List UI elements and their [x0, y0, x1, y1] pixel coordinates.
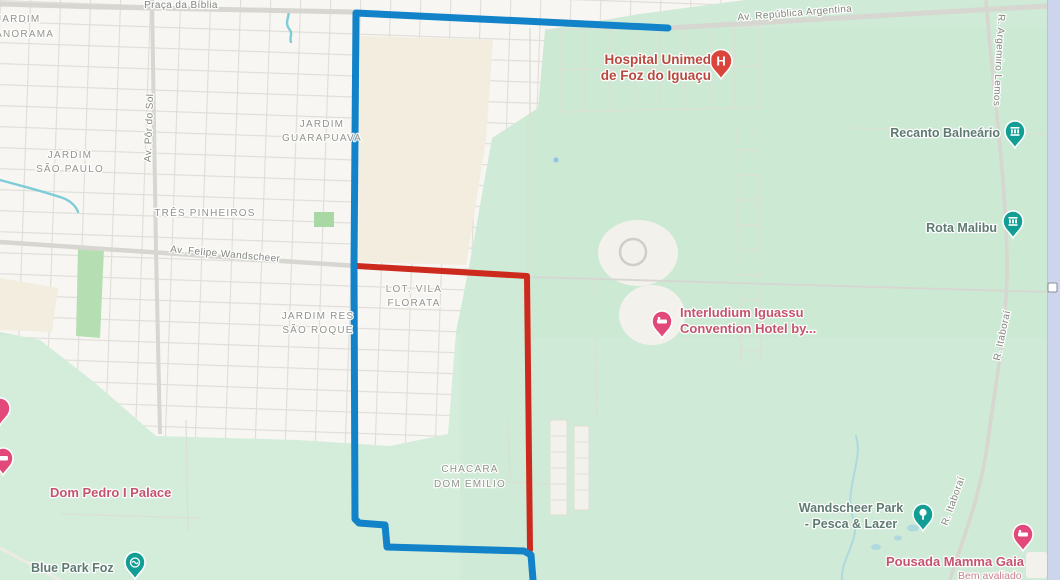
- building-icon: [1011, 127, 1020, 136]
- building-icon: [1009, 217, 1018, 226]
- poi-label-pousada-mamma-gaia[interactable]: Pousada Mamma Gaia: [886, 554, 1025, 569]
- area-label-jardim-sao-paulo: JARDIM: [48, 150, 92, 161]
- area-label-tres-pinheiros: TRÊS PINHEIROS: [154, 206, 255, 219]
- map-canvas[interactable]: H Praça da Bíblia Av. República A: [0, 0, 1060, 580]
- housing-row: [574, 426, 589, 510]
- map-svg: H Praça da Bíblia Av. República A: [0, 0, 1060, 580]
- area-label-jardim-guarapuava-l2: GUARAPUAVA: [282, 133, 362, 144]
- scrollbar-handle[interactable]: [1048, 283, 1057, 292]
- area-label-lot-vila-florata-l2: FLORATA: [387, 298, 440, 309]
- poi-label-blue-park-foz[interactable]: Blue Park Foz: [31, 561, 114, 575]
- roundabout: [620, 239, 646, 265]
- area-label-jardim-res-sao-roque-l2: SÃO ROQUE: [282, 323, 353, 336]
- area-label-jardim-res-sao-roque: JARDIM RES: [282, 311, 355, 322]
- area-label-jardim-panorama-l2: PANORAMA: [0, 29, 54, 40]
- poi-label-wandscheer-park[interactable]: Wandscheer Park: [799, 501, 903, 515]
- park-square: [314, 212, 334, 227]
- area-label-lot-vila-florata: LOT. VILA: [386, 284, 442, 295]
- poi-label-rota-malibu[interactable]: Rota Malibu: [926, 221, 997, 235]
- scrollbar-strip: [1047, 0, 1060, 580]
- poi-label-hospital-unimed[interactable]: Hospital Unimed: [604, 52, 711, 67]
- area-label-chacara-dom-emilio: CHACARA: [441, 464, 498, 475]
- bed-icon: [0, 456, 8, 461]
- poi-label-interludium[interactable]: Interludium Iguassu: [680, 305, 804, 320]
- area-label-jardim-sao-paulo-l2: SÃO PAULO: [36, 162, 104, 175]
- park-strip: [76, 248, 104, 338]
- street-label-praca-da-biblia: Praça da Bíblia: [144, 0, 218, 11]
- poi-label-recanto-balneario[interactable]: Recanto Balneário: [890, 126, 1000, 140]
- poi-label-hospital-unimed-l2[interactable]: de Foz do Iguaçu: [601, 68, 711, 83]
- hospital-h-icon: H: [716, 54, 725, 69]
- area-label-jardim-panorama: JARDIM: [0, 14, 40, 25]
- area-label-chacara-dom-emilio-l2: DOM EMILIO: [434, 479, 506, 490]
- poi-label-mamma-gaia-rating: Bem avaliado: [958, 570, 1022, 580]
- area-label-jardim-guarapuava: JARDIM: [300, 119, 344, 130]
- hotel-grounds: [619, 285, 685, 345]
- poi-label-interludium-l2[interactable]: Convention Hotel by...: [680, 321, 816, 336]
- poi-label-wandscheer-park-l2[interactable]: - Pesca & Lazer: [805, 517, 898, 531]
- poi-label-dom-pedro-palace[interactable]: Dom Pedro I Palace: [50, 485, 171, 500]
